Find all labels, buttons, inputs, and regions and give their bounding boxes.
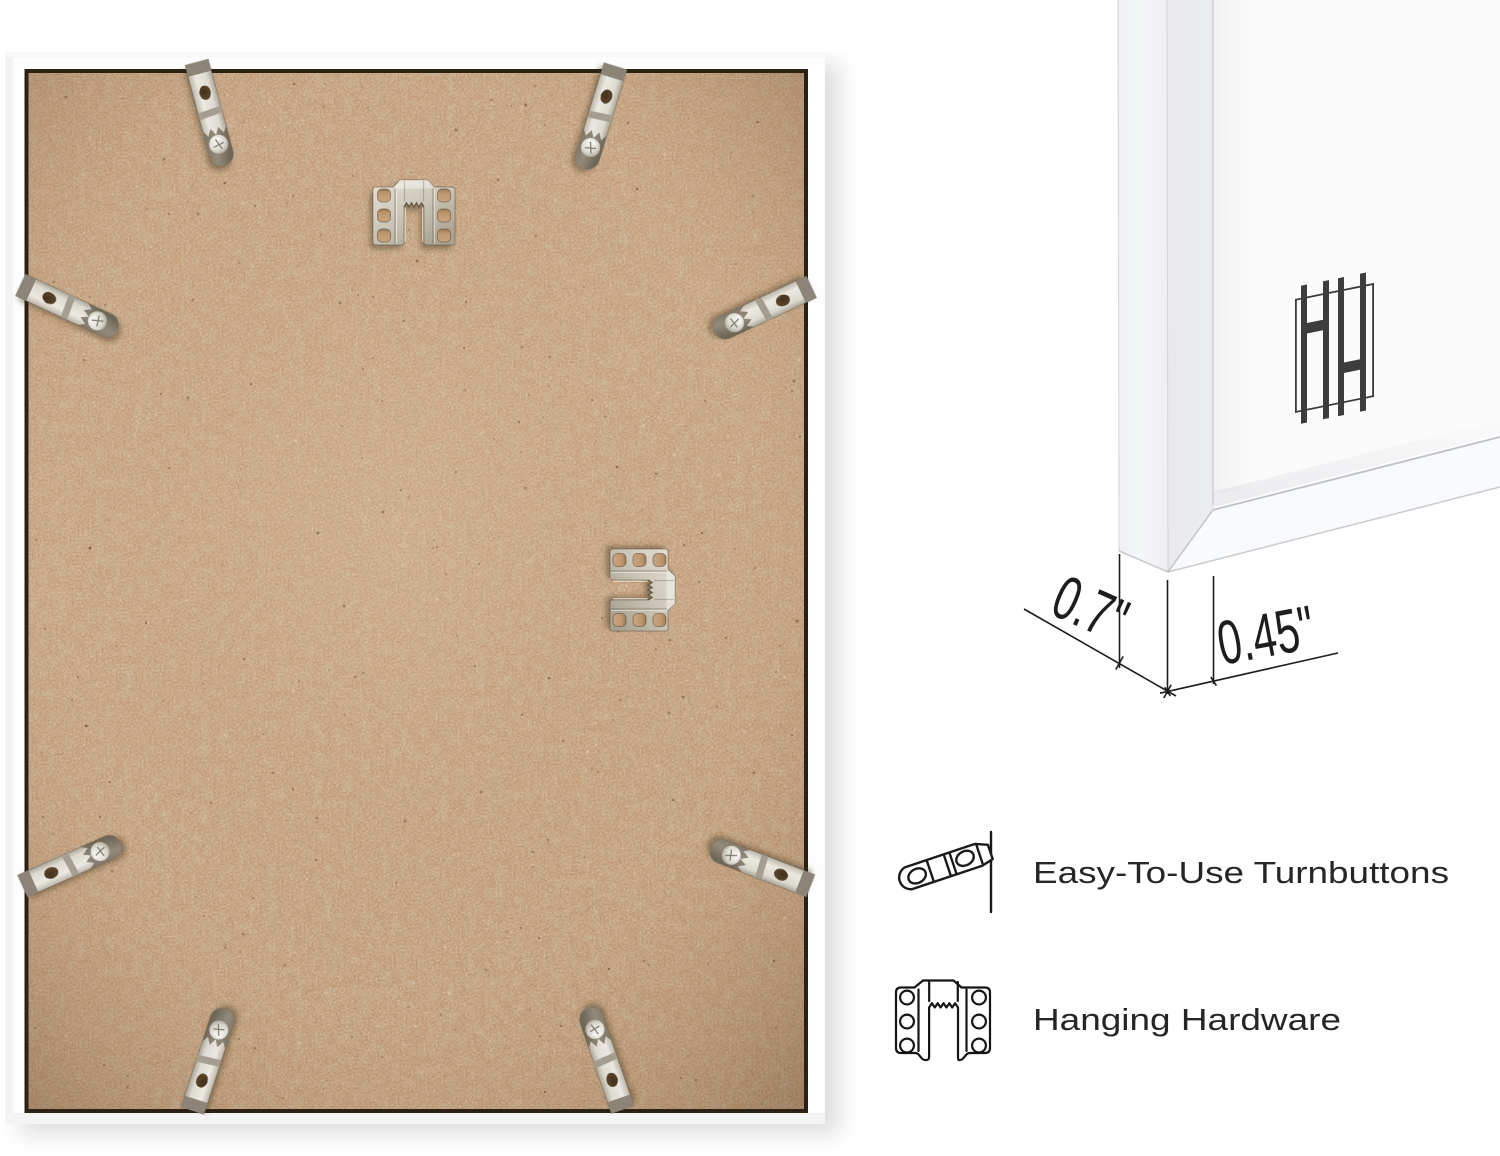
svg-text:0.45": 0.45" xyxy=(1212,593,1320,679)
svg-text:Easy-To-Use Turnbuttons: Easy-To-Use Turnbuttons xyxy=(1033,855,1449,890)
svg-text:0.7": 0.7" xyxy=(1042,563,1138,656)
svg-text:Hanging Hardware: Hanging Hardware xyxy=(1033,1002,1341,1037)
